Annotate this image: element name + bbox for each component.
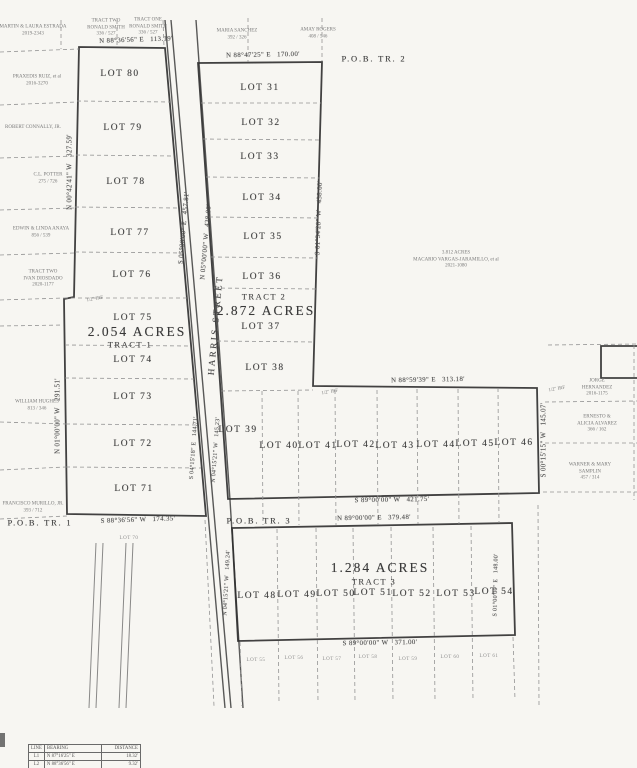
- lot-label: LOT 58: [359, 655, 378, 662]
- owner-label: PRAXEDIS RUIZ, et al 2016-3270: [13, 75, 61, 88]
- lot-label: LOT 51: [353, 587, 392, 599]
- owner-label: AMAY ROGERS 408 / 546: [300, 28, 336, 41]
- lot-label: LOT 73: [113, 391, 152, 403]
- lot-label: LOT 39: [218, 424, 257, 436]
- lot-label: LOT 44: [416, 439, 455, 451]
- line-table-row: L2 N 88°36'56" E 9.32': [29, 761, 141, 768]
- lot-label: LOT 41: [298, 440, 337, 452]
- lot-label: LOT 60: [441, 655, 460, 662]
- lot-label: LOT 33: [240, 151, 279, 163]
- owner-label: MARIA SANCHEZ 392 / 326: [217, 29, 258, 42]
- owner-label: 3.812 ACRES MACARIO VARGAS-JARAMILLO, et…: [413, 250, 499, 270]
- lot-label: LOT 35: [243, 231, 282, 243]
- owner-label: EDWIN & LINDA ANAYA 856 / 539: [13, 227, 69, 240]
- lot-label: LOT 56: [285, 656, 304, 663]
- table-cell: L1: [29, 753, 45, 761]
- table-header: BEARING: [44, 745, 101, 753]
- bearing-label: S 01°00'00" E 148.00': [493, 553, 502, 616]
- owner-label: TRACT ONE RONALD SMITH 336 / 527: [129, 17, 167, 37]
- owner-label: WARNER & MARY SAMPLIN 457 / 314: [567, 462, 614, 482]
- pob-label: P.O.B. TR. 3: [227, 515, 292, 526]
- lot-label: LOT 53: [436, 588, 475, 600]
- bearing-label: N 00°42'41" W 327.59': [67, 134, 76, 210]
- lot-label: LOT 70: [120, 536, 139, 543]
- lot-label: LOT 61: [480, 654, 499, 661]
- lot-label: LOT 49: [277, 589, 316, 601]
- lot-label: LOT 40: [259, 440, 298, 452]
- lot-label: LOT 52: [392, 588, 431, 600]
- table-header: LINE: [29, 745, 45, 753]
- table-cell: L2: [29, 761, 45, 768]
- line-table-header-row: LINE BEARING DISTANCE: [29, 745, 141, 753]
- scan-artifact: [0, 733, 5, 747]
- tract1-area-label: 2.054 ACRES: [88, 323, 187, 341]
- dashed-lot-lines: [0, 18, 637, 706]
- lot-label: LOT 36: [242, 271, 281, 283]
- lot-label: LOT 71: [114, 483, 153, 495]
- lot-label: LOT 31: [240, 82, 279, 94]
- pob-label: P.O.B. TR. 2: [342, 53, 407, 64]
- owner-label: ERNESTO & ALICIA ALVAREZ 366 / 162: [577, 414, 617, 434]
- table-cell: N 87°16'25" E: [44, 753, 101, 761]
- lot-label: LOT 57: [323, 657, 342, 664]
- bearing-label: S 89°00'00" W 421.75': [355, 496, 430, 506]
- lot-label: LOT 76: [112, 269, 151, 281]
- street-lines: [165, 20, 243, 708]
- lot-label: LOT 59: [399, 657, 418, 664]
- lot-label: LOT 37: [241, 321, 280, 333]
- tract2-area-label: 2.872 ACRES: [217, 302, 316, 320]
- tract1-name-label: TRACT 1: [108, 339, 153, 350]
- lot-label: LOT 48: [237, 590, 276, 602]
- owner-label: WILLIAM HUGHES 813 / 346: [15, 400, 59, 413]
- bearing-label: S 00°15'15" W 145.07': [541, 403, 550, 478]
- lot-label: LOT 38: [245, 362, 284, 374]
- table-cell: 9.32': [101, 761, 140, 768]
- bearing-label: S 89°00'00" W 371.00': [343, 639, 418, 649]
- lot-label: LOT 43: [375, 440, 414, 452]
- bearing-label: N 89°00'00" E 379.48': [337, 514, 411, 524]
- lot-label: LOT 45: [455, 438, 494, 450]
- owner-label: TRACT TWO RONALD SMITH 336 / 527: [87, 18, 125, 38]
- lot-label: LOT 79: [103, 122, 142, 134]
- lot-label: LOT 74: [113, 354, 152, 366]
- lot-label: LOT 55: [247, 658, 266, 665]
- lot-label: LOT 80: [100, 68, 139, 80]
- owner-label: FRANCISCO MURILLO, JR. 393 / 712: [2, 502, 63, 515]
- lot-label: LOT 34: [242, 192, 281, 204]
- secondary-lines: [89, 543, 133, 708]
- owner-label: C.L. POTTER 275 / 726: [33, 173, 62, 186]
- plat-linework: [0, 0, 637, 768]
- table-cell: 18.32': [101, 753, 140, 761]
- lot-label: LOT 72: [113, 438, 152, 450]
- table-cell: N 88°36'56" E: [44, 761, 101, 768]
- owner-label: MARTIN & LAURA ESTRADA 2019-2343: [0, 25, 67, 38]
- bearing-label: N 88°59'39" E 313.18': [391, 376, 465, 386]
- line-table-row: L1 N 87°16'25" E 18.32': [29, 753, 141, 761]
- table-header: DISTANCE: [101, 745, 140, 753]
- lot-label: LOT 78: [106, 176, 145, 188]
- owner-label: JORGE HERNANDEZ 2016-1175: [577, 378, 617, 398]
- lot-label: LOT 32: [241, 117, 280, 129]
- pob-label: P.O.B. TR. 1: [8, 517, 73, 528]
- lot-label: LOT 77: [110, 227, 149, 239]
- tract2-name-label: TRACT 2: [242, 291, 287, 302]
- lot-label: LOT 46: [494, 437, 533, 449]
- owner-label: ROBERT CONNALLY, JR.: [5, 125, 61, 132]
- lot-label: LOT 42: [336, 439, 375, 451]
- bearing-label: N 01°00'00" W 291.51': [55, 378, 64, 454]
- tract3-area-label: 1.284 ACRES: [331, 559, 430, 577]
- line-table: LINE BEARING DISTANCE L1 N 87°16'25" E 1…: [28, 744, 141, 768]
- owner-label: TRACT TWO IVAN DIOSDADO 2020-1177: [23, 269, 62, 289]
- survey-plat-scan: LOT 80 LOT 79 LOT 78 LOT 77 LOT 76 LOT 7…: [0, 0, 637, 768]
- lot-label: LOT 50: [316, 588, 355, 600]
- bearing-label: N 88°47'25" E 170.00': [226, 51, 300, 61]
